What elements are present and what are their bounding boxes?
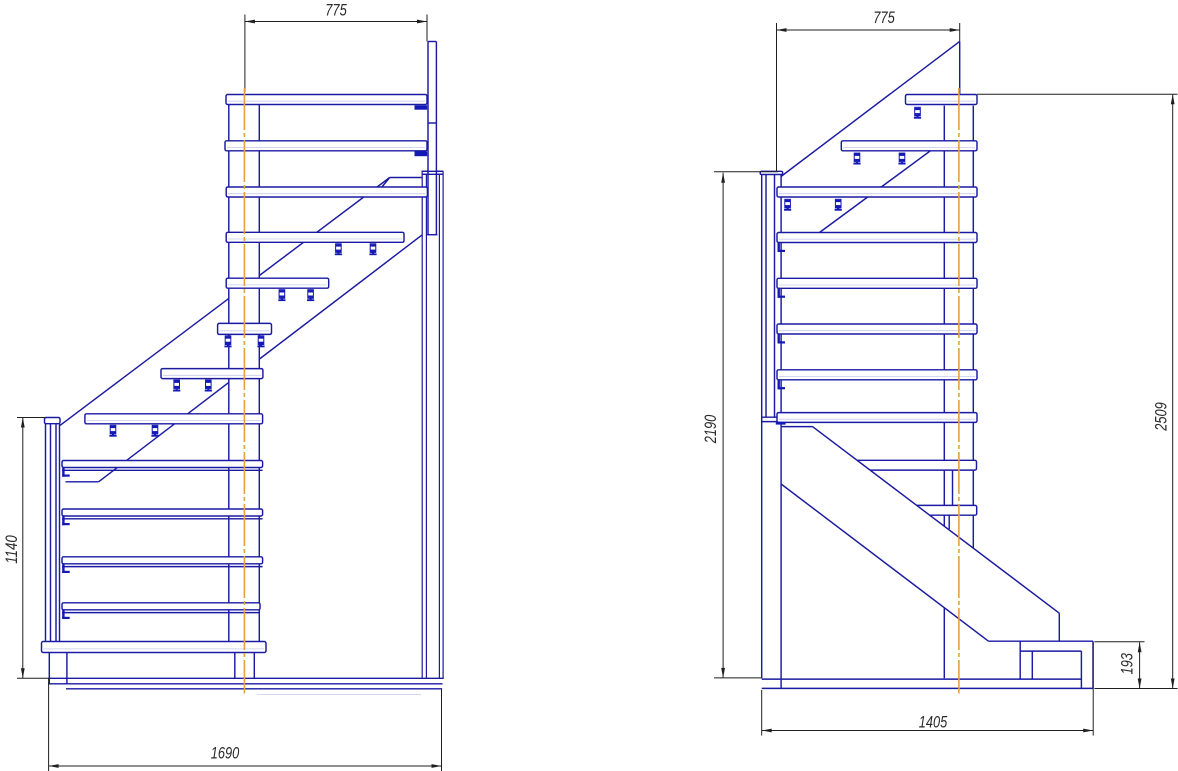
svg-text:193: 193 bbox=[1118, 653, 1137, 675]
svg-text:2509: 2509 bbox=[1152, 402, 1171, 432]
svg-text:775: 775 bbox=[325, 1, 347, 20]
svg-text:775: 775 bbox=[873, 8, 895, 27]
svg-text:1405: 1405 bbox=[919, 713, 948, 732]
svg-text:1140: 1140 bbox=[2, 535, 21, 564]
svg-text:2190: 2190 bbox=[701, 414, 720, 444]
svg-text:1690: 1690 bbox=[211, 744, 240, 763]
